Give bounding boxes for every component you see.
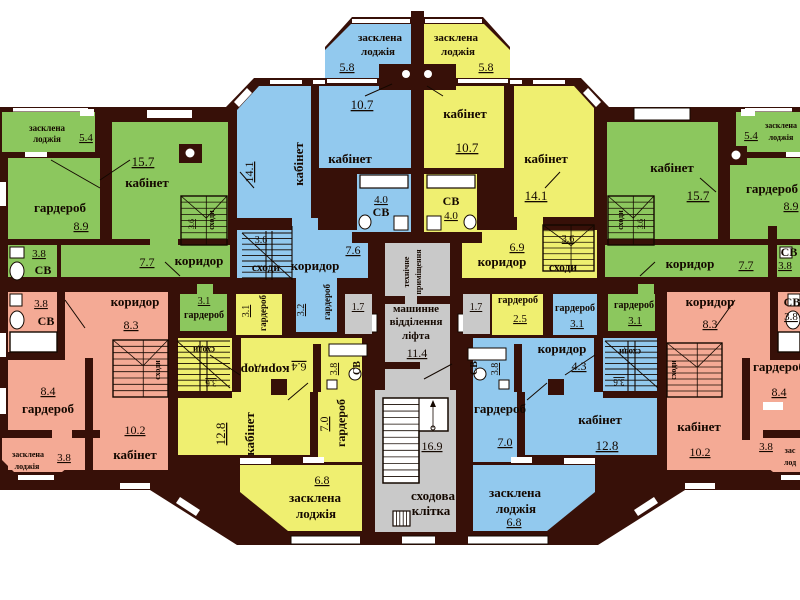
svg-text:3.6: 3.6 xyxy=(613,377,625,387)
svg-text:3.6: 3.6 xyxy=(187,219,196,229)
svg-text:гардероб: гардероб xyxy=(322,283,332,320)
svg-text:3.1: 3.1 xyxy=(570,318,584,330)
svg-text:7.7: 7.7 xyxy=(739,258,754,272)
svg-text:12.8: 12.8 xyxy=(596,438,619,453)
svg-text:7.0: 7.0 xyxy=(317,417,331,432)
svg-text:3.1: 3.1 xyxy=(628,315,642,327)
svg-text:гардероб: гардероб xyxy=(22,401,75,416)
svg-text:сходова: сходова xyxy=(411,488,456,503)
svg-text:3.1: 3.1 xyxy=(241,305,252,318)
svg-text:гардероб: гардероб xyxy=(746,181,799,196)
svg-text:коридор: коридор xyxy=(478,254,527,269)
svg-text:7.7: 7.7 xyxy=(140,255,155,269)
svg-text:6.8: 6.8 xyxy=(315,473,330,487)
svg-text:16.9: 16.9 xyxy=(422,439,443,453)
svg-text:сходи: сходи xyxy=(549,262,578,274)
svg-text:3.8: 3.8 xyxy=(329,363,340,376)
svg-text:кабінет: кабінет xyxy=(677,419,721,434)
svg-text:гардероб: гардероб xyxy=(334,399,348,447)
svg-text:3.8: 3.8 xyxy=(759,441,773,453)
svg-text:3.8: 3.8 xyxy=(778,260,792,272)
svg-text:засклена: засклена xyxy=(765,121,797,130)
svg-text:1.7: 1.7 xyxy=(470,302,483,313)
svg-text:засклена: засклена xyxy=(12,450,44,459)
svg-text:кабінет: кабінет xyxy=(328,151,372,166)
svg-text:кабінет: кабінет xyxy=(242,412,257,456)
svg-text:гардероб: гардероб xyxy=(258,294,268,331)
svg-text:засклена: засклена xyxy=(289,490,342,505)
svg-text:6.8: 6.8 xyxy=(507,515,522,529)
svg-text:сходи: сходи xyxy=(669,360,678,380)
svg-text:10.7: 10.7 xyxy=(351,97,374,112)
svg-text:СВ: СВ xyxy=(784,295,800,309)
svg-text:СВ: СВ xyxy=(373,205,390,219)
svg-text:сходи: сходи xyxy=(207,210,216,230)
svg-text:5.4: 5.4 xyxy=(79,132,93,144)
svg-text:5.4: 5.4 xyxy=(744,130,758,142)
svg-text:СВ: СВ xyxy=(352,361,363,375)
svg-text:зас: зас xyxy=(785,446,796,455)
svg-text:10.2: 10.2 xyxy=(690,445,711,459)
svg-text:8.4: 8.4 xyxy=(41,384,56,398)
svg-text:гардероб: гардероб xyxy=(555,303,595,314)
svg-text:СВ: СВ xyxy=(38,314,55,328)
svg-text:12.8: 12.8 xyxy=(213,423,228,446)
svg-text:засклена: засклена xyxy=(434,32,479,44)
svg-text:лоджія: лоджія xyxy=(361,46,395,58)
svg-text:сходи: сходи xyxy=(252,262,281,274)
svg-text:3.8: 3.8 xyxy=(34,298,48,310)
svg-text:клітка: клітка xyxy=(412,503,451,518)
svg-text:15.7: 15.7 xyxy=(132,154,155,169)
svg-text:15.7: 15.7 xyxy=(687,188,710,203)
svg-text:3.6: 3.6 xyxy=(205,378,217,388)
svg-text:8.9: 8.9 xyxy=(784,199,799,213)
svg-text:гардероб: гардероб xyxy=(753,359,800,374)
svg-text:коридор: коридор xyxy=(111,294,160,309)
svg-text:3.6: 3.6 xyxy=(636,219,645,229)
svg-text:коридор: коридор xyxy=(666,256,715,271)
svg-text:3.2: 3.2 xyxy=(296,304,307,317)
svg-text:8.3: 8.3 xyxy=(124,318,139,332)
svg-text:лоджія: лоджія xyxy=(296,506,336,521)
svg-text:3.8: 3.8 xyxy=(57,452,71,464)
svg-text:5.8: 5.8 xyxy=(479,60,494,74)
svg-text:кабінет: кабінет xyxy=(443,106,487,121)
svg-text:14.1: 14.1 xyxy=(242,162,256,183)
svg-text:сходи: сходи xyxy=(193,345,215,355)
svg-text:машинне: машинне xyxy=(393,303,439,315)
svg-text:приміщення: приміщення xyxy=(414,249,423,295)
svg-text:СВ: СВ xyxy=(469,361,480,375)
svg-text:відділення: відділення xyxy=(390,316,443,328)
svg-text:3.6: 3.6 xyxy=(255,235,268,246)
svg-text:6.9: 6.9 xyxy=(510,240,525,254)
svg-text:8.9: 8.9 xyxy=(74,219,89,233)
svg-text:лоджія: лоджія xyxy=(441,46,475,58)
svg-text:кабінет: кабінет xyxy=(578,412,622,427)
svg-text:гардероб: гардероб xyxy=(34,200,87,215)
svg-text:7.6: 7.6 xyxy=(346,243,361,257)
svg-text:10.7: 10.7 xyxy=(456,140,479,155)
svg-text:6.4: 6.4 xyxy=(292,360,307,374)
svg-text:засклена: засклена xyxy=(358,32,403,44)
svg-text:3.8: 3.8 xyxy=(490,363,501,376)
svg-text:СВ: СВ xyxy=(35,263,52,277)
svg-text:лоджія: лоджія xyxy=(33,134,61,144)
svg-text:3.1: 3.1 xyxy=(198,296,211,307)
svg-text:гардероб: гардероб xyxy=(474,401,527,416)
svg-text:сходи: сходи xyxy=(616,210,625,230)
svg-text:2.5: 2.5 xyxy=(513,313,527,325)
svg-text:4.3: 4.3 xyxy=(572,359,587,373)
svg-text:лоджія: лоджія xyxy=(15,462,40,471)
svg-text:10.2: 10.2 xyxy=(125,423,146,437)
svg-text:лоджія: лоджія xyxy=(496,501,536,516)
svg-text:сходи: сходи xyxy=(619,347,641,357)
svg-text:коридор: коридор xyxy=(175,253,224,268)
svg-text:коридор: коридор xyxy=(241,363,290,378)
svg-text:коридор: коридор xyxy=(291,258,340,273)
svg-text:ліфта: ліфта xyxy=(402,330,430,342)
svg-text:кабінет: кабінет xyxy=(113,447,157,462)
svg-text:8.3: 8.3 xyxy=(703,317,718,331)
svg-text:кабінет: кабінет xyxy=(291,142,306,186)
svg-text:коридор: коридор xyxy=(538,341,587,356)
svg-text:кабінет: кабінет xyxy=(125,175,169,190)
svg-text:3.8: 3.8 xyxy=(32,248,46,260)
svg-text:14.1: 14.1 xyxy=(525,188,548,203)
svg-text:5.8: 5.8 xyxy=(340,60,355,74)
svg-text:гардероб: гардероб xyxy=(184,310,224,321)
svg-text:7.0: 7.0 xyxy=(498,435,513,449)
svg-text:8.4: 8.4 xyxy=(772,385,787,399)
svg-text:3.6: 3.6 xyxy=(562,234,575,245)
svg-text:4.0: 4.0 xyxy=(444,210,458,222)
svg-text:кабінет: кабінет xyxy=(650,160,694,175)
svg-text:засклена: засклена xyxy=(29,123,66,133)
svg-text:коридор: коридор xyxy=(686,294,735,309)
svg-text:СВ: СВ xyxy=(443,194,460,208)
svg-text:технічне: технічне xyxy=(402,256,411,287)
svg-text:1.7: 1.7 xyxy=(352,302,365,313)
svg-text:сходи: сходи xyxy=(153,360,162,380)
svg-text:3.8: 3.8 xyxy=(784,311,798,323)
svg-text:гардероб: гардероб xyxy=(498,295,538,306)
svg-text:лод: лод xyxy=(784,458,796,467)
svg-text:11.4: 11.4 xyxy=(407,346,428,360)
svg-text:СВ: СВ xyxy=(781,245,798,259)
svg-text:лоджія: лоджія xyxy=(769,133,794,142)
svg-text:засклена: засклена xyxy=(489,485,542,500)
svg-text:кабінет: кабінет xyxy=(524,151,568,166)
svg-text:гардероб: гардероб xyxy=(614,300,654,311)
